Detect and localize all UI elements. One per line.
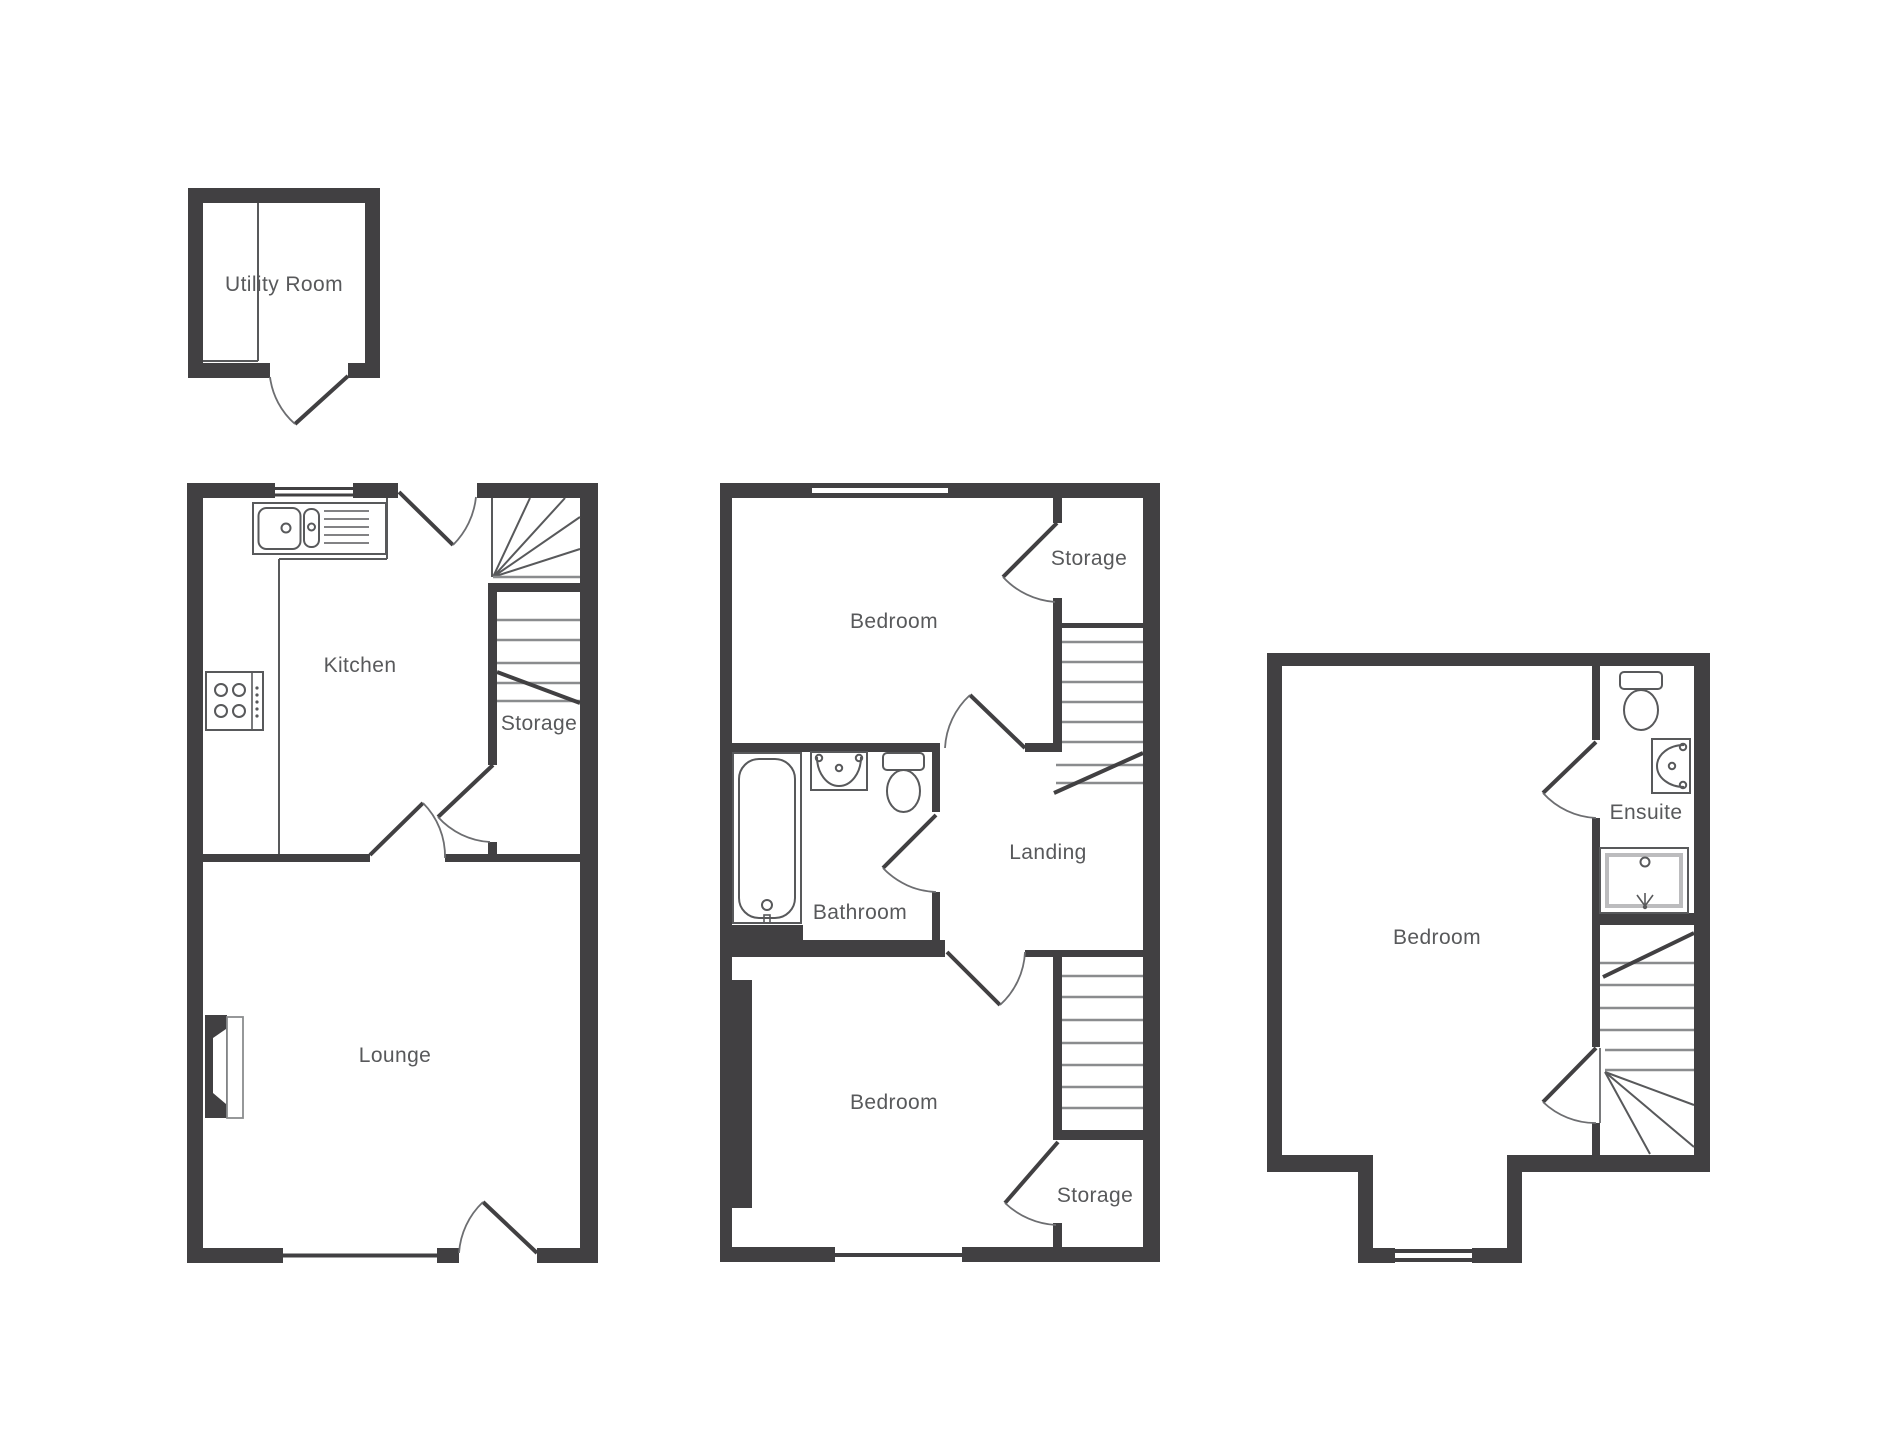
wall [720, 743, 940, 752]
ground-storage-door [438, 765, 493, 842]
wall [1053, 498, 1062, 523]
room-label-ensuite: Ensuite [1610, 801, 1683, 824]
utility-door [270, 376, 348, 424]
room-label-storage-top: Storage [1051, 547, 1127, 570]
storage-bottom-door [1005, 1142, 1058, 1225]
room-label-bathroom: Bathroom [813, 901, 907, 924]
wall [353, 483, 398, 498]
bedroom-back-door [947, 952, 1025, 1005]
bathtub [733, 753, 801, 923]
wall [1592, 818, 1600, 1047]
room-label-lounge: Lounge [359, 1044, 431, 1067]
bedroom-front-door [945, 695, 1025, 748]
storage-top-door [1003, 523, 1057, 602]
bedroom-front-window [812, 483, 948, 498]
wall [720, 483, 812, 498]
chimney-breast [732, 980, 752, 1208]
wall [932, 752, 940, 812]
wall [537, 1248, 598, 1263]
wall [1025, 743, 1060, 752]
bedroom-back-window [835, 1253, 962, 1257]
wall [1472, 1248, 1522, 1263]
bathroom-door [883, 815, 936, 892]
room-label-storage-ground: Storage [501, 712, 577, 735]
wall [348, 363, 380, 378]
wall [488, 842, 497, 854]
stair-break-line [497, 672, 580, 703]
wall [948, 483, 1160, 498]
door-leaf [295, 376, 348, 424]
wall [1053, 1223, 1062, 1247]
wall [188, 188, 380, 203]
wall [1053, 628, 1062, 752]
washbasin [1652, 739, 1690, 793]
staircase-first [1054, 642, 1143, 1108]
room-label-kitchen: Kitchen [324, 654, 397, 677]
floor-plan-drawing: Utility Room Kitchen Storage Lounge Bedr… [0, 0, 1894, 1452]
wall [187, 483, 203, 1263]
wall [445, 854, 580, 862]
winder-treads [1605, 1072, 1694, 1154]
wall [720, 1247, 835, 1262]
wall [1025, 950, 1143, 957]
wall [1143, 483, 1160, 1262]
wall [437, 1248, 459, 1263]
wall [203, 854, 370, 862]
kitchen-lounge-door [370, 803, 445, 858]
wall [1267, 653, 1710, 666]
wall [1053, 623, 1143, 628]
wall [1507, 1155, 1710, 1172]
wall [488, 583, 580, 592]
wall [188, 363, 270, 378]
wall [962, 1247, 1160, 1262]
wall [1358, 1248, 1395, 1263]
ensuite-door [1543, 742, 1596, 818]
room-label-landing: Landing [1009, 841, 1087, 864]
utility-room-plan [188, 188, 380, 424]
wall [1592, 666, 1600, 740]
wall [365, 188, 380, 378]
room-label-bedroom-front: Bedroom [850, 610, 938, 633]
wall [477, 483, 598, 498]
shower [1600, 848, 1688, 913]
bedroom-dormer-window [1395, 1249, 1472, 1262]
door-swing-arc [270, 377, 295, 424]
stair-break-line [1603, 933, 1694, 977]
wall [1592, 913, 1694, 925]
wall [188, 188, 203, 378]
kitchen-back-door [399, 492, 476, 545]
wall [803, 940, 945, 957]
room-label-bedroom-second: Bedroom [1393, 926, 1481, 949]
wall [1267, 1155, 1373, 1172]
wall [187, 1248, 283, 1263]
wall [1592, 1123, 1600, 1155]
wall [1267, 653, 1282, 1172]
wall [187, 483, 275, 498]
wall [720, 483, 732, 1262]
wall [1507, 1155, 1522, 1263]
bedroom-top-door [1543, 1048, 1596, 1123]
floor-plan-canvas: Utility Room Kitchen Storage Lounge Bedr… [0, 0, 1894, 1452]
fireplace [205, 1015, 243, 1118]
staircase-ground [492, 498, 580, 703]
wall [720, 925, 803, 957]
second-floor-plan [1267, 653, 1710, 1263]
ground-floor-plan [187, 483, 598, 1263]
washbasin [811, 752, 867, 790]
first-floor-plan [720, 483, 1160, 1262]
kitchen-window [275, 487, 353, 497]
hob [206, 672, 263, 730]
wall [1358, 1155, 1373, 1263]
wall [1694, 653, 1710, 1172]
wall [488, 592, 497, 765]
lounge-window [283, 1254, 437, 1258]
kitchen-sink [253, 503, 386, 554]
room-label-utility-room: Utility Room [225, 273, 343, 296]
room-label-storage-bottom: Storage [1057, 1184, 1133, 1207]
toilet [1620, 672, 1662, 730]
wall [1053, 957, 1062, 1130]
room-label-bedroom-back: Bedroom [850, 1091, 938, 1114]
staircase-second [1600, 933, 1694, 1154]
wall [1053, 1130, 1143, 1140]
stair-break-line [1054, 753, 1143, 793]
wall [580, 483, 598, 1263]
toilet [883, 753, 924, 812]
front-door [459, 1202, 537, 1253]
